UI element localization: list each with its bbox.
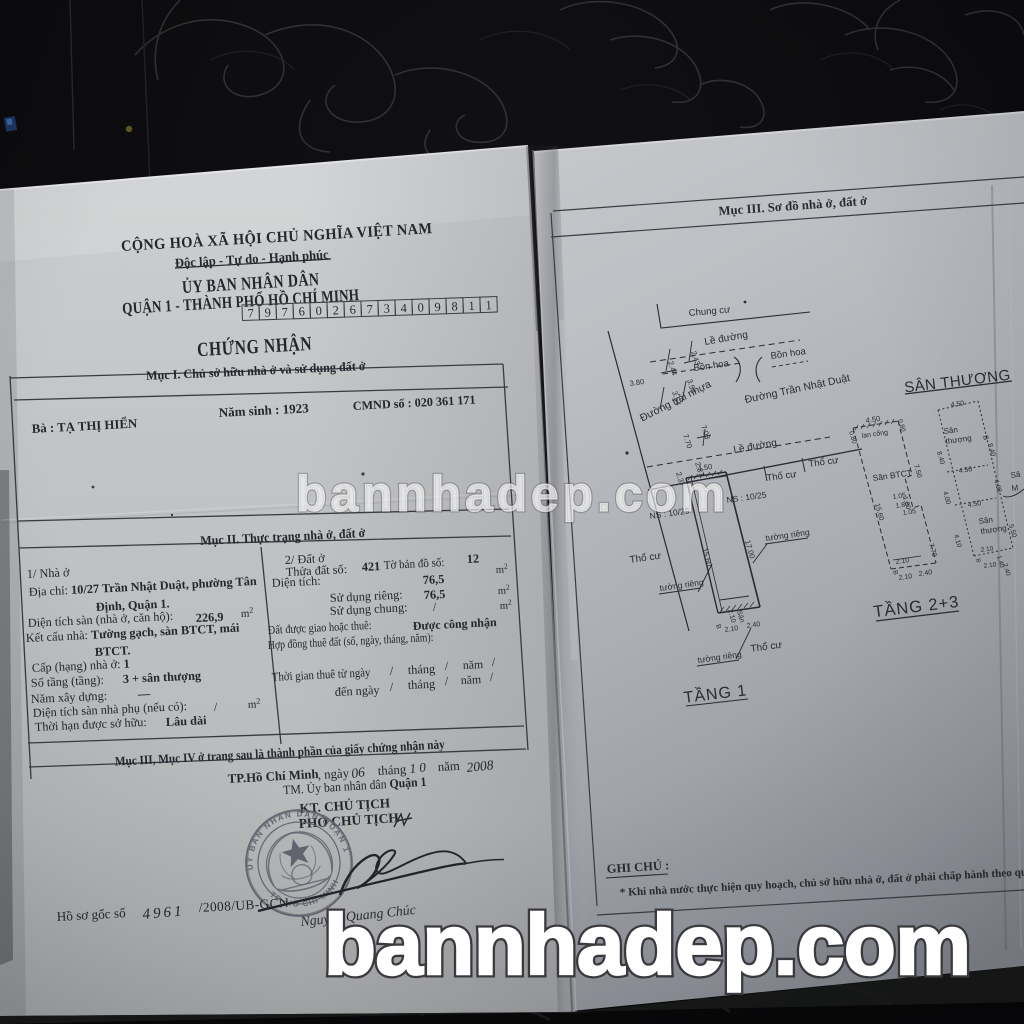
svg-text:bannhadep.com: bannhadep.com xyxy=(296,466,729,522)
svg-text:bannhadep.com: bannhadep.com xyxy=(324,898,971,993)
